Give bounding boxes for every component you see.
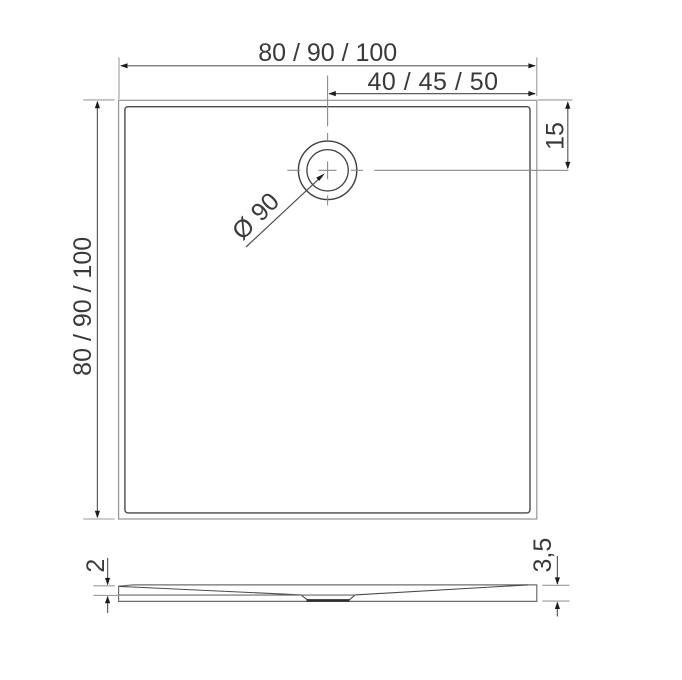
svg-text:2: 2 (82, 559, 110, 573)
svg-text:40 / 45 / 50: 40 / 45 / 50 (367, 68, 498, 96)
svg-text:3,5: 3,5 (529, 538, 557, 573)
svg-text:80 / 90 / 100: 80 / 90 / 100 (258, 39, 397, 67)
svg-text:80 / 90 / 100: 80 / 90 / 100 (69, 237, 97, 376)
svg-text:15: 15 (542, 122, 570, 150)
